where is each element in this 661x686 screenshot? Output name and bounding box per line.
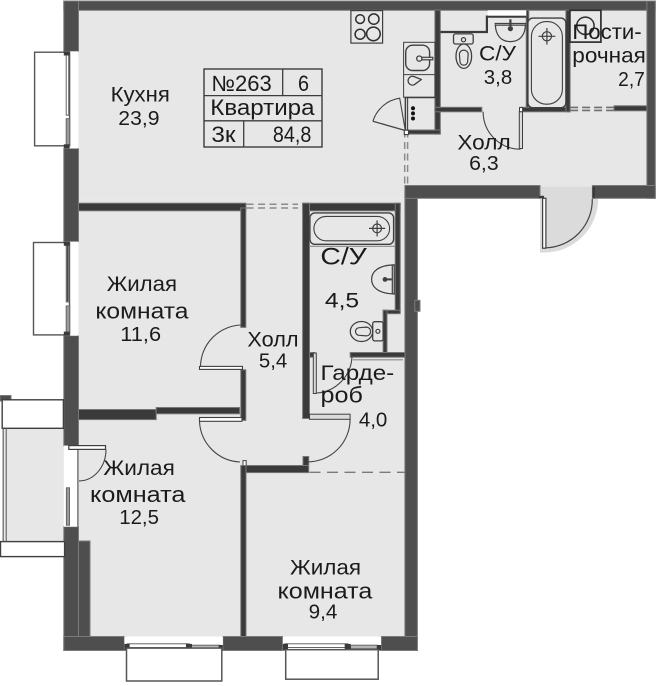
svg-text:Холл: Холл <box>247 329 298 352</box>
svg-text:№263: №263 <box>211 71 271 96</box>
svg-text:3,8: 3,8 <box>484 67 512 89</box>
svg-text:4,0: 4,0 <box>359 410 388 432</box>
svg-text:С/У: С/У <box>320 244 367 271</box>
svg-text:Пости-: Пости- <box>572 21 641 44</box>
svg-text:6: 6 <box>298 71 309 96</box>
svg-text:23,9: 23,9 <box>118 108 159 130</box>
svg-text:Жилая: Жилая <box>103 456 175 480</box>
svg-text:84,8: 84,8 <box>273 122 311 147</box>
svg-text:комната: комната <box>95 299 189 324</box>
svg-text:12,5: 12,5 <box>119 507 159 529</box>
svg-text:Жилая: Жилая <box>107 272 177 296</box>
svg-text:4,5: 4,5 <box>325 289 359 313</box>
svg-text:комната: комната <box>278 579 374 604</box>
svg-text:2,7: 2,7 <box>618 69 645 91</box>
svg-text:6,3: 6,3 <box>469 153 499 175</box>
svg-text:роб: роб <box>321 383 363 408</box>
svg-text:9,4: 9,4 <box>309 602 338 624</box>
svg-text:Квартира: Квартира <box>210 95 315 120</box>
svg-text:11,6: 11,6 <box>120 324 161 346</box>
svg-text:рочная: рочная <box>572 44 646 67</box>
svg-text:комната: комната <box>90 482 186 507</box>
svg-text:Жилая: Жилая <box>290 556 361 580</box>
svg-text:Холл: Холл <box>457 131 510 154</box>
svg-text:3к: 3к <box>211 122 236 147</box>
svg-text:5,4: 5,4 <box>259 351 287 373</box>
svg-text:С/У: С/У <box>479 43 517 66</box>
svg-text:Кухня: Кухня <box>111 84 170 107</box>
